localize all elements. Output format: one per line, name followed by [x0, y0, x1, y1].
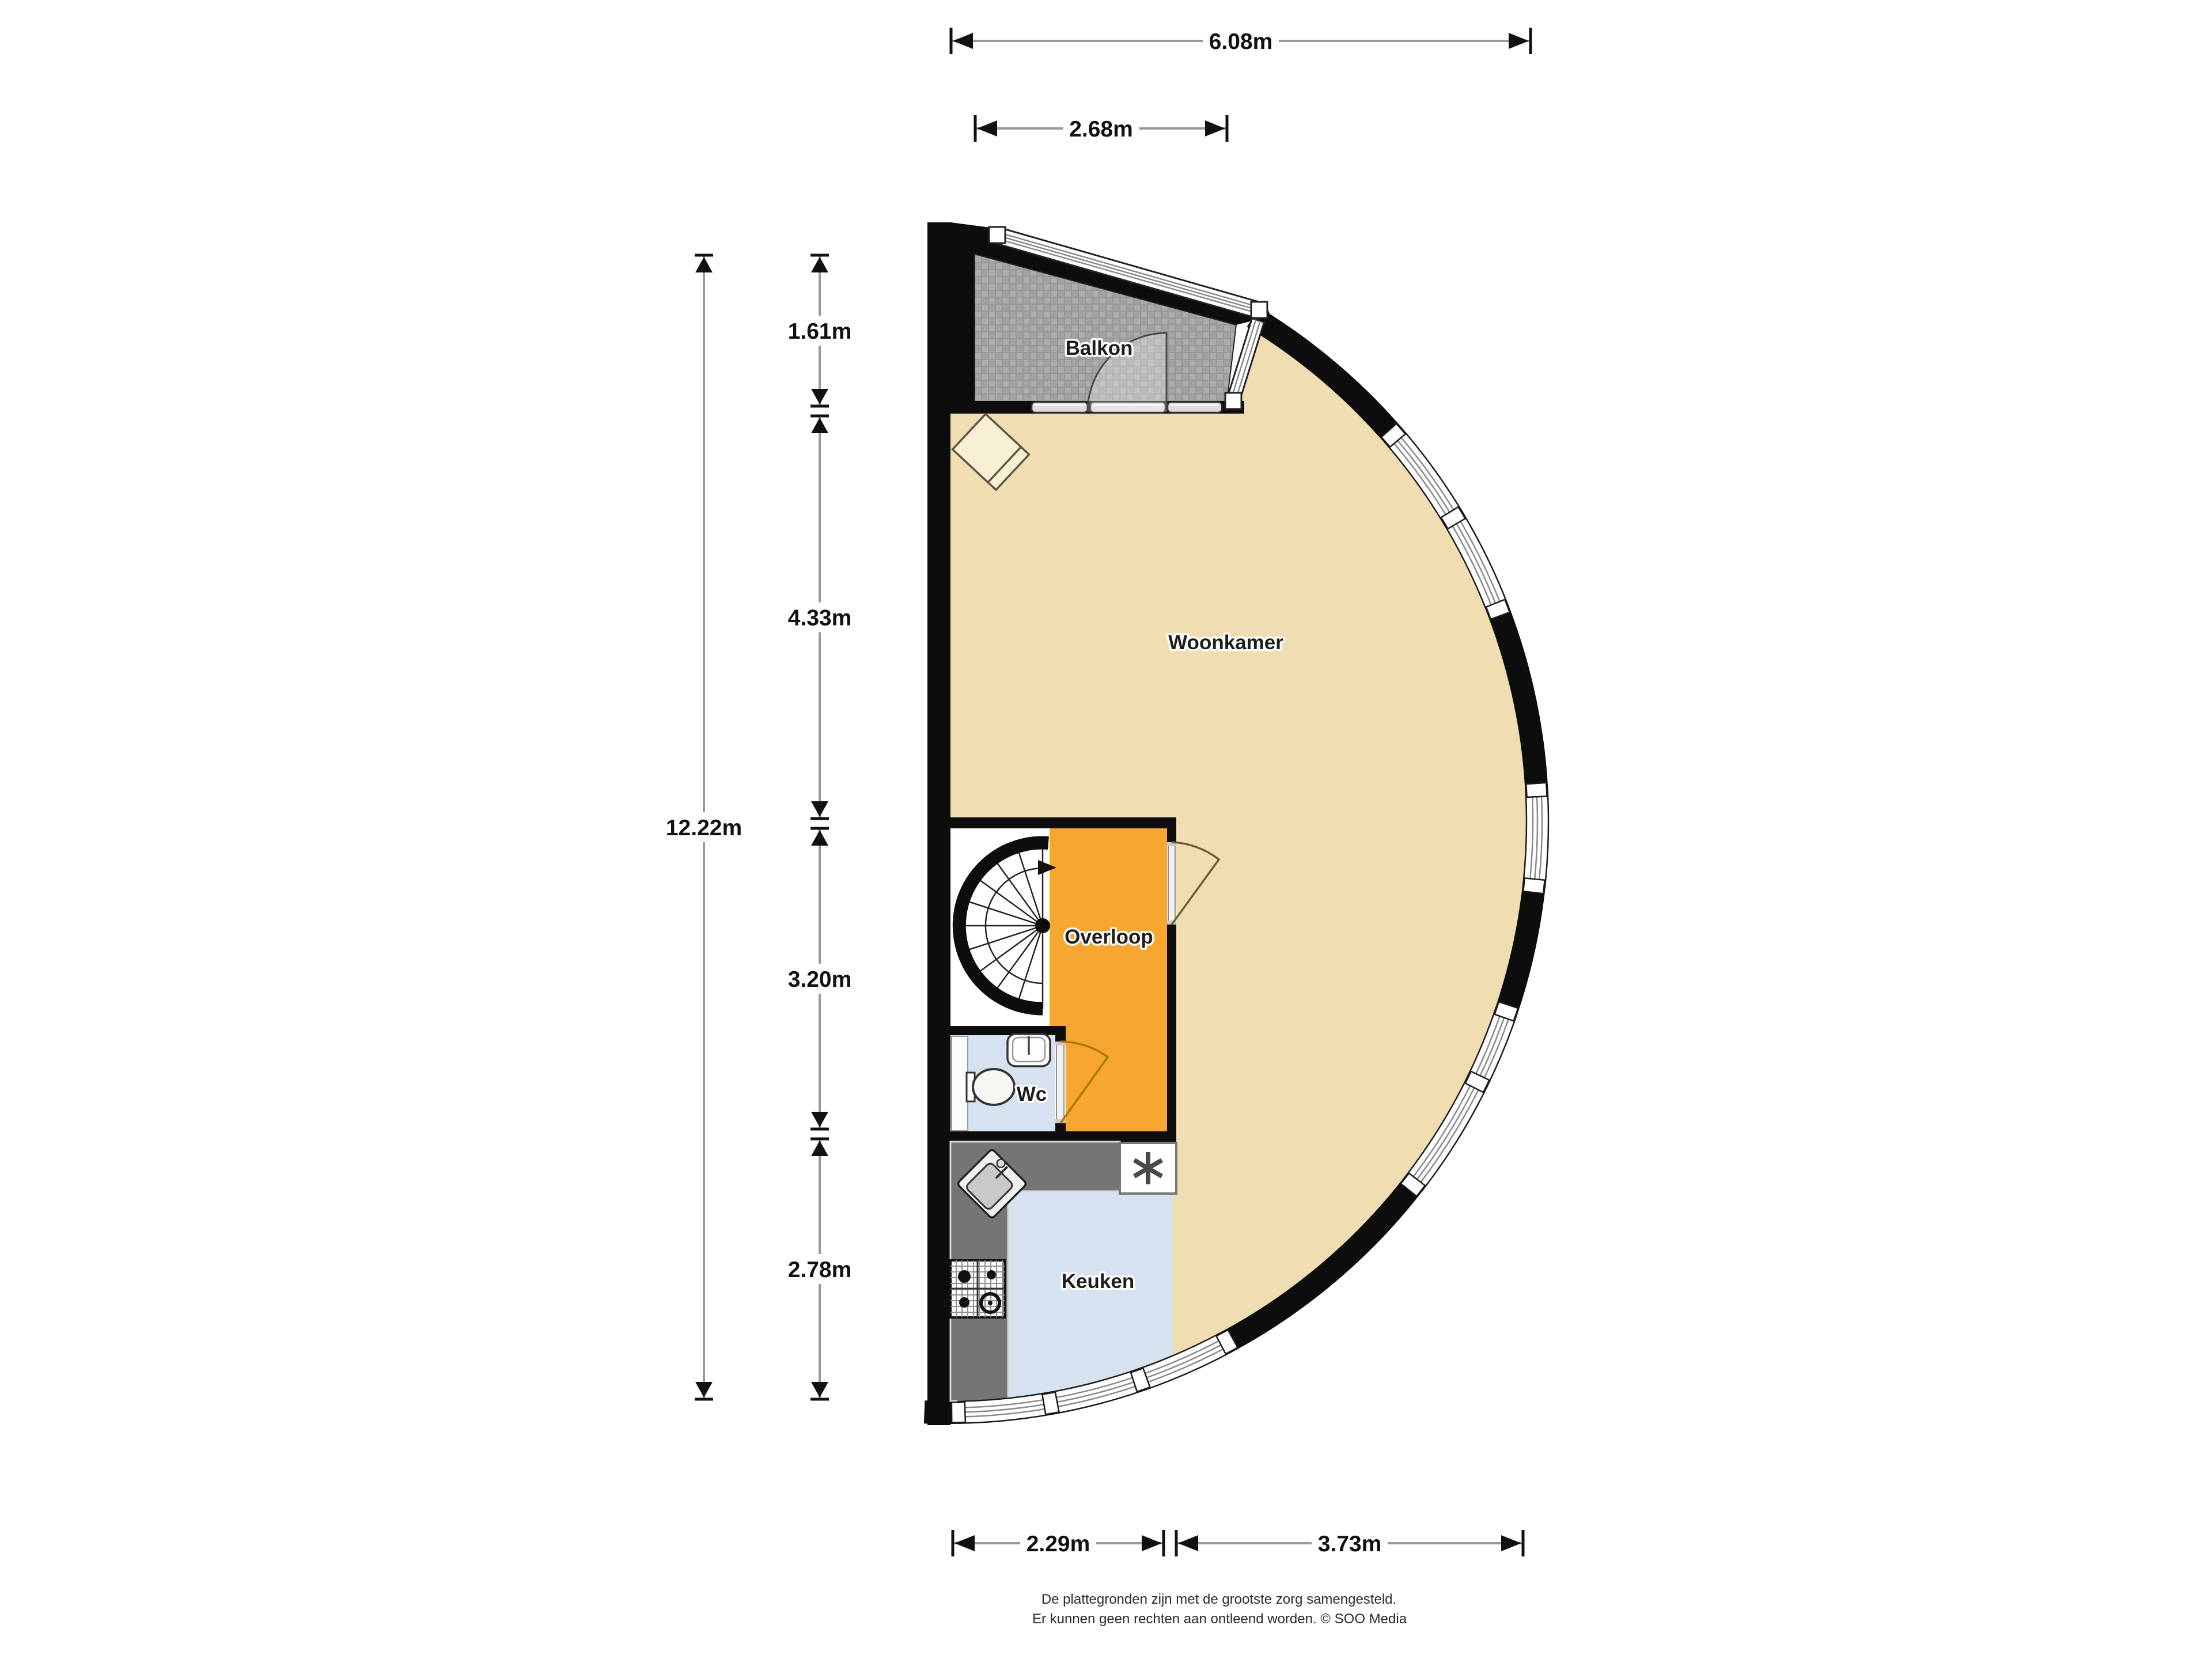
- svg-text:12.22m: 12.22m: [666, 816, 742, 840]
- svg-text:Keuken: Keuken: [1062, 1270, 1134, 1293]
- svg-text:Er kunnen geen rechten aan ont: Er kunnen geen rechten aan ontleend word…: [1032, 1611, 1407, 1627]
- svg-text:4.33m: 4.33m: [788, 606, 852, 631]
- svg-text:2.29m: 2.29m: [1027, 1532, 1090, 1556]
- svg-text:Wc: Wc: [1017, 1083, 1047, 1105]
- svg-text:6.08m: 6.08m: [1209, 29, 1273, 54]
- svg-text:3.73m: 3.73m: [1318, 1532, 1382, 1556]
- svg-text:Woonkamer: Woonkamer: [1168, 631, 1283, 654]
- svg-text:Overloop: Overloop: [1065, 926, 1153, 948]
- svg-text:Balkon: Balkon: [1066, 337, 1133, 359]
- svg-text:3.20m: 3.20m: [788, 967, 852, 992]
- svg-text:2.68m: 2.68m: [1069, 117, 1133, 142]
- svg-text:De plattegronden zijn met de g: De plattegronden zijn met de grootste zo…: [1041, 1592, 1396, 1607]
- svg-text:2.78m: 2.78m: [788, 1257, 852, 1282]
- svg-text:1.61m: 1.61m: [788, 319, 852, 344]
